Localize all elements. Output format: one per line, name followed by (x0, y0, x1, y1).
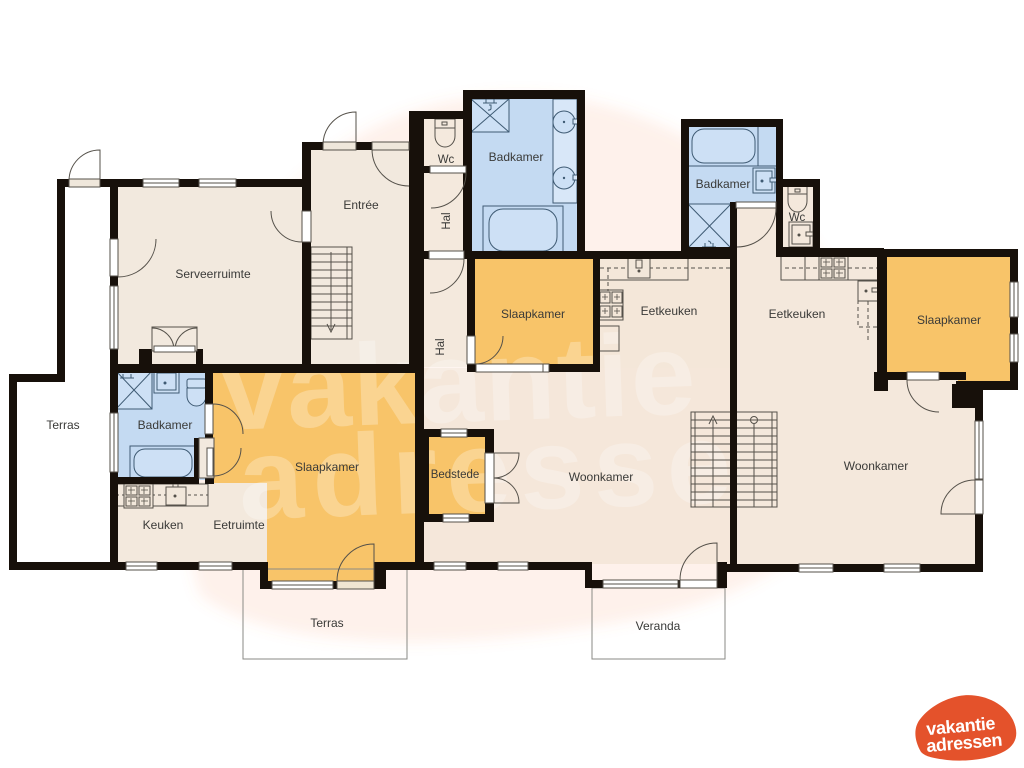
svg-text:Wc: Wc (789, 212, 806, 224)
svg-text:Bedstede: Bedstede (431, 469, 480, 481)
svg-text:Woonkamer: Woonkamer (844, 459, 908, 473)
svg-text:Serveerruimte: Serveerruimte (175, 267, 251, 281)
svg-text:Eetkeuken: Eetkeuken (769, 307, 826, 321)
svg-text:Woonkamer: Woonkamer (569, 470, 633, 484)
svg-text:Terras: Terras (46, 418, 79, 432)
svg-text:Badkamer: Badkamer (489, 150, 544, 164)
svg-text:Keuken: Keuken (143, 518, 184, 532)
svg-text:Veranda: Veranda (636, 619, 681, 633)
svg-text:Slaapkamer: Slaapkamer (917, 313, 981, 327)
svg-text:Badkamer: Badkamer (696, 177, 751, 191)
svg-text:Badkamer: Badkamer (138, 418, 193, 432)
svg-text:Hal: Hal (435, 338, 447, 355)
svg-text:Entrée: Entrée (343, 198, 379, 212)
svg-text:Slaapkamer: Slaapkamer (295, 460, 359, 474)
svg-text:Hal: Hal (441, 212, 453, 229)
svg-text:Wc: Wc (438, 154, 455, 166)
svg-text:Eetruimte: Eetruimte (213, 518, 265, 532)
svg-text:Terras: Terras (310, 616, 343, 630)
svg-text:Eetkeuken: Eetkeuken (641, 304, 698, 318)
svg-text:Slaapkamer: Slaapkamer (501, 307, 565, 321)
